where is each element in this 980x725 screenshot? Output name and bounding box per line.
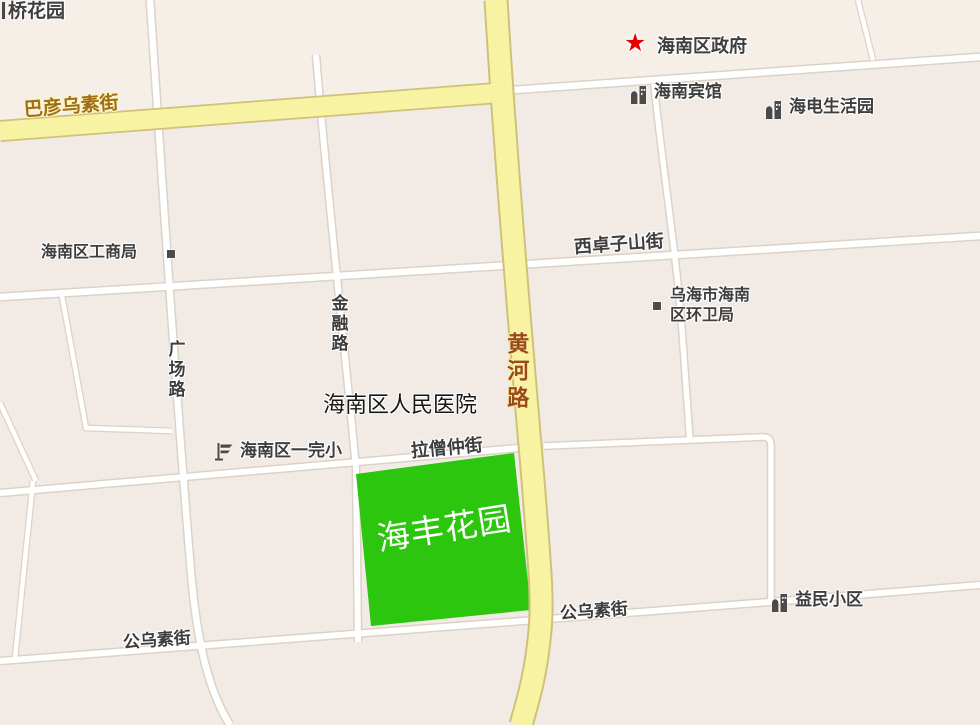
road-label-huanghe-road: 黄河路 [504, 332, 529, 413]
building-icon [629, 83, 649, 105]
poi-yimin-community-label: 益民小区 [795, 590, 863, 610]
truncated-character-fragment [2, 2, 5, 19]
road-xizhuozishan [0, 236, 980, 297]
poi-huanwei-bureau[interactable]: 乌海市海南 区环卫局 [670, 286, 750, 326]
road-border-minor-corner [62, 296, 172, 431]
poi-haidian-life-park-label: 海电生活园 [789, 97, 874, 117]
road-border-laseng-east [544, 437, 771, 602]
road-label-jinrong-road: 金融路 [328, 294, 348, 354]
poi-peoples-hospital[interactable]: 海南区人民医院 [323, 392, 477, 417]
flag-icon [214, 442, 235, 461]
poi-qiaohuayuan[interactable]: 桥花园 [2, 1, 65, 23]
poi-hainan-hotel-label: 海南宾馆 [654, 82, 722, 102]
poi-haidian-life-park[interactable]: 海电生活园 [764, 97, 874, 120]
road-laseng-east [544, 437, 771, 602]
poi-gongshang-bureau[interactable]: 海南区工商局 [41, 244, 137, 262]
road-minor-corner [62, 296, 172, 431]
building-icon [764, 98, 784, 120]
poi-yiwan-primary-school-label: 海南区一完小 [240, 441, 342, 461]
poi-qiaohuayuan-label: 桥花园 [8, 1, 65, 22]
map-canvas[interactable]: 桥花园 巴彦乌素街 ★ 海南区政府 海南宾馆 海电生活园 海南区工商局 西卓子山… [0, 0, 980, 725]
red-star-icon: ★ [624, 28, 646, 58]
poi-yimin-community[interactable]: 益民小区 [770, 590, 863, 613]
poi-hainan-government[interactable]: 海南区政府 [657, 36, 747, 57]
poi-huanwei-bureau-line2: 区环卫局 [670, 306, 750, 326]
road-left-diagonal [0, 403, 36, 481]
poi-hainan-hotel[interactable]: 海南宾馆 [629, 82, 722, 105]
road-label-guangchang-road: 广场路 [165, 340, 185, 400]
poi-huanwei-bureau-line1: 乌海市海南 [670, 286, 750, 306]
small-square-icon [167, 250, 175, 258]
road-left-vertical [15, 481, 33, 658]
poi-yiwan-primary-school[interactable]: 海南区一完小 [214, 441, 342, 461]
building-icon [770, 591, 790, 613]
small-square-icon [653, 302, 661, 310]
